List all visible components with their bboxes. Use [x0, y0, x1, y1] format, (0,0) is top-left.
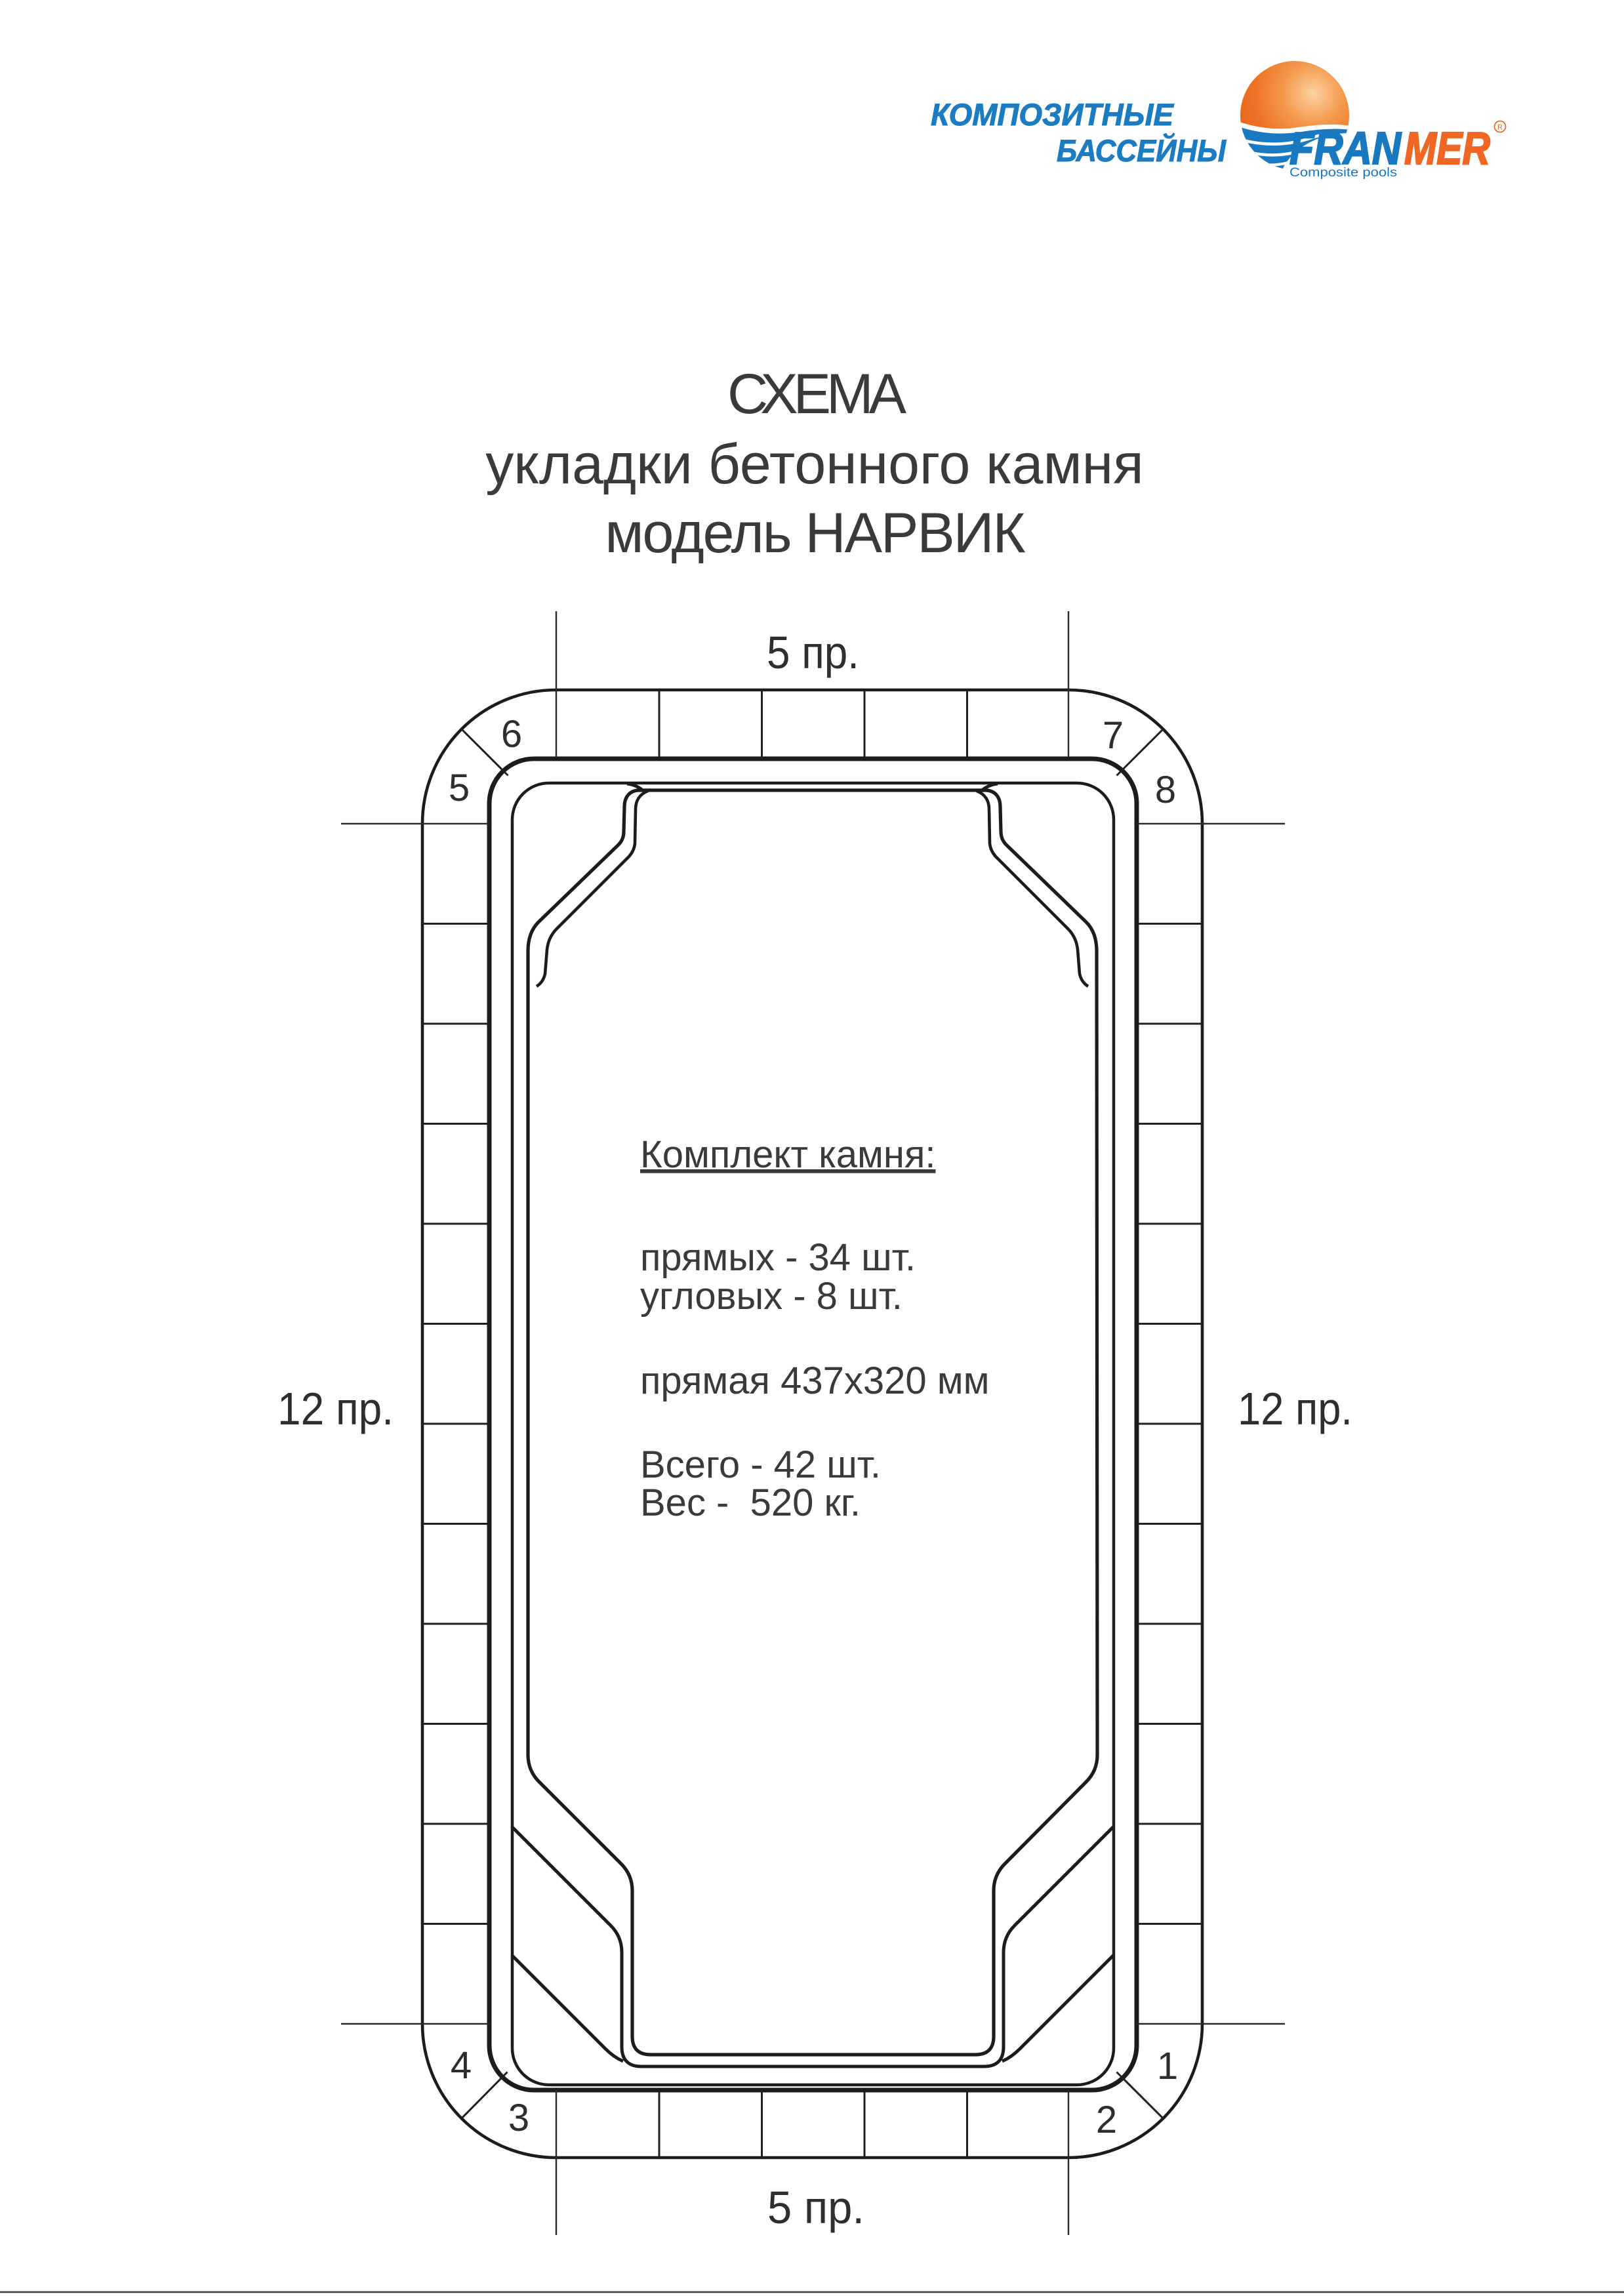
svg-text:12 пр.: 12 пр.: [277, 1383, 394, 1434]
svg-text:4: 4: [451, 2044, 472, 2087]
svg-text:БАССЕЙНЫ: БАССЕЙНЫ: [1057, 133, 1227, 168]
svg-text:КОМПОЗИТНЫЕ: КОМПОЗИТНЫЕ: [931, 97, 1175, 132]
svg-text:6: 6: [501, 713, 522, 755]
svg-text:Всего - 42 шт.: Всего - 42 шт.: [640, 1443, 881, 1486]
svg-text:1: 1: [1157, 2045, 1178, 2087]
svg-text:Комплект камня:: Комплект камня:: [640, 1133, 935, 1176]
svg-text:MER: MER: [1404, 123, 1490, 174]
svg-text:5 пр.: 5 пр.: [767, 2182, 864, 2233]
svg-text:укладки бетонного камня: укладки бетонного камня: [485, 433, 1143, 496]
svg-text:2: 2: [1096, 2099, 1117, 2141]
svg-text:8: 8: [1155, 769, 1176, 811]
svg-text:3: 3: [508, 2097, 529, 2139]
svg-text:12 пр.: 12 пр.: [1238, 1383, 1352, 1434]
svg-text:5 пр.: 5 пр.: [767, 627, 859, 678]
svg-text:R: R: [1497, 124, 1503, 132]
svg-text:угловых - 8 шт.: угловых - 8 шт.: [640, 1275, 903, 1318]
svg-text:Вес - 520 кг.: Вес - 520 кг.: [640, 1481, 861, 1524]
svg-text:7: 7: [1103, 714, 1124, 757]
svg-text:прямая 437х320 мм: прямая 437х320 мм: [640, 1359, 989, 1402]
svg-text:5: 5: [449, 767, 470, 809]
svg-text:СХЕМА: СХЕМА: [727, 363, 907, 426]
svg-text:прямых - 34 шт.: прямых - 34 шт.: [640, 1236, 916, 1279]
svg-text:модель НАРВИК: модель НАРВИК: [605, 502, 1025, 565]
svg-text:Composite pools: Composite pools: [1289, 165, 1397, 180]
